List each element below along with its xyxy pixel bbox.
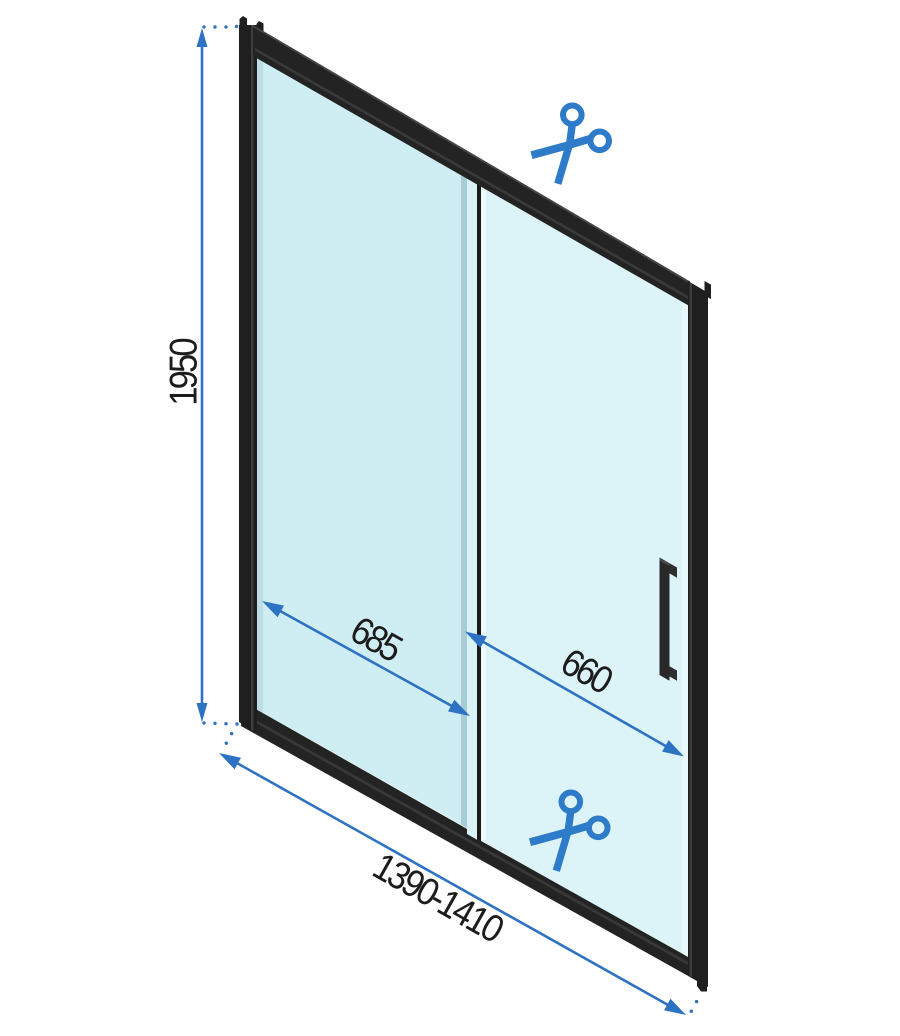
svg-text:1950: 1950 bbox=[162, 339, 205, 406]
